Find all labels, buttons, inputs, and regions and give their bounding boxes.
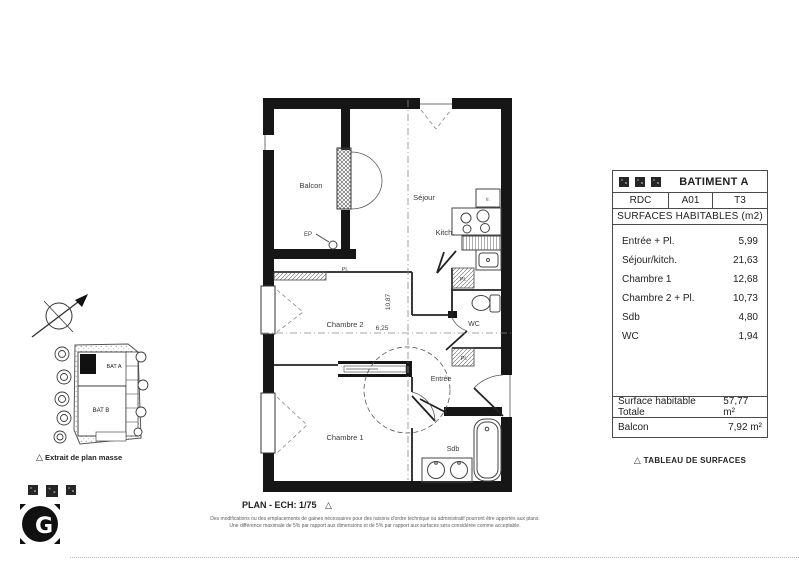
triangle-icon: △ (36, 452, 43, 462)
table-caption: △ TABLEAU DE SURFACES (612, 455, 768, 466)
room-area: 12,68 (733, 270, 758, 289)
surfaces-table-header: BATIMENT A (613, 171, 767, 193)
triangle-icon: △ (325, 500, 332, 510)
company-logo-disc: G (22, 506, 58, 542)
surfaces-table: BATIMENT A RDC A01 T3 SURFACES HABITABLE… (612, 170, 768, 438)
table-row: Chambre 1 12,68 (622, 270, 758, 289)
site-label-bat-b: BAT B (93, 408, 110, 414)
plan-caption-text: PLAN - ECH: 1/75 (242, 500, 317, 510)
triangle-icon: △ (634, 455, 641, 465)
room-area: 10,73 (733, 289, 758, 308)
footnote-line-2: Une différence maximale de 5% par rappor… (205, 523, 545, 530)
partner-logos (28, 485, 76, 497)
unit-type: T3 (713, 193, 767, 208)
partner-logo-icon-1 (28, 485, 38, 495)
site-label-bat-a: BAT A (106, 364, 121, 370)
room-name: Séjour/kitch. (622, 251, 677, 270)
plan-caption: PLAN - ECH: 1/75 △ (242, 500, 332, 511)
room-name: Sdb (622, 308, 640, 327)
room-area: 4,80 (739, 308, 758, 327)
partner-logo-icon-3 (66, 485, 76, 495)
site-map: BAT A BAT B (54, 344, 148, 444)
north-arrow-icon (32, 294, 88, 337)
promoter-logo-icon-3 (651, 177, 661, 187)
crop-mark-icon (20, 504, 26, 510)
table-caption-text: TABLEAU DE SURFACES (644, 456, 746, 465)
total-value: 57,77 m² (723, 396, 762, 418)
room-name: WC (622, 327, 639, 346)
unit-info-row: RDC A01 T3 (613, 193, 767, 209)
crop-mark-icon (54, 504, 60, 510)
room-area: 5,99 (739, 232, 758, 251)
total-surface-row: Surface habitable Totale 57,77 m² (613, 397, 767, 417)
room-area: 21,63 (733, 251, 758, 270)
total-label: Balcon (618, 422, 649, 433)
table-row: Sdb 4,80 (622, 308, 758, 327)
crop-mark-icon (54, 538, 60, 544)
balcony-surface-row: Balcon 7,92 m² (613, 417, 767, 437)
room-name: Entrée + Pl. (622, 232, 675, 251)
footnote-line-1: Des modifications ou des emplacements de… (205, 516, 545, 523)
total-value: 7,92 m² (728, 422, 762, 433)
floor-level: RDC (613, 193, 669, 208)
scan-artifact-line (70, 557, 799, 558)
room-name: Chambre 2 + Pl. (622, 289, 695, 308)
company-logo-letter: G (35, 516, 53, 538)
room-area: 1,94 (739, 327, 758, 346)
crop-mark-icon (20, 538, 26, 544)
room-name: Chambre 1 (622, 270, 671, 289)
promoter-logo-icon-1 (619, 177, 629, 187)
site-plan-caption: △ Extrait de plan masse (36, 452, 122, 463)
promoter-logo-icon-2 (635, 177, 645, 187)
unit-number: A01 (669, 193, 713, 208)
legal-footnote: Des modifications ou des emplacements de… (205, 516, 545, 530)
scanned-floor-plan-page: Balcon Séjour Kitch. Chambre 2 Chambre 1… (0, 0, 799, 565)
table-row: Séjour/kitch. 21,63 (622, 251, 758, 270)
partner-logo-icon-2 (46, 485, 58, 497)
totals-section: Surface habitable Totale 57,77 m² Balcon… (613, 396, 767, 437)
table-row: Chambre 2 + Pl. 10,73 (622, 289, 758, 308)
surfaces-subtitle: SURFACES HABITABLES (m2) (613, 209, 767, 225)
site-caption-text: Extrait de plan masse (45, 453, 122, 462)
table-row: Entrée + Pl. 5,99 (622, 232, 758, 251)
total-label: Surface habitable Totale (618, 396, 723, 418)
company-logo: G (20, 504, 60, 544)
building-title: BATIMENT A (664, 176, 764, 188)
table-row: WC 1,94 (622, 327, 758, 346)
room-surface-list: Entrée + Pl. 5,99 Séjour/kitch. 21,63 Ch… (613, 225, 767, 396)
